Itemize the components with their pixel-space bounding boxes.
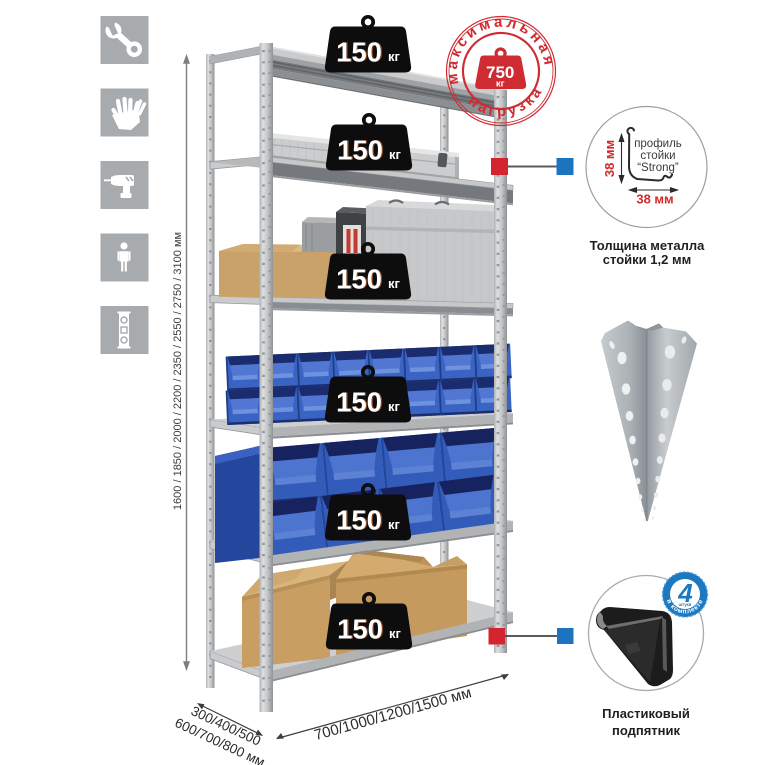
svg-text:38 мм: 38 мм <box>636 192 673 207</box>
svg-text:стойки: стойки <box>640 150 675 162</box>
svg-text:Пластиковый: Пластиковый <box>602 706 690 721</box>
svg-text:“Strong”: “Strong” <box>637 162 679 174</box>
svg-text:1600 / 1850 / 2000 / 2200 / 23: 1600 / 1850 / 2000 / 2200 / 2350 / 2550 … <box>172 232 184 510</box>
svg-text:кг: кг <box>496 79 505 90</box>
svg-text:подпятник: подпятник <box>612 723 681 738</box>
svg-text:стойки 1,2 мм: стойки 1,2 мм <box>603 252 691 267</box>
svg-text:профиль: профиль <box>634 138 682 150</box>
svg-text:38 мм: 38 мм <box>602 140 617 177</box>
svg-text:штуки: штуки <box>679 602 692 607</box>
svg-text:700/1000/1200/1500 мм: 700/1000/1200/1500 мм <box>312 684 473 744</box>
svg-text:Толщина металла: Толщина металла <box>590 238 705 253</box>
